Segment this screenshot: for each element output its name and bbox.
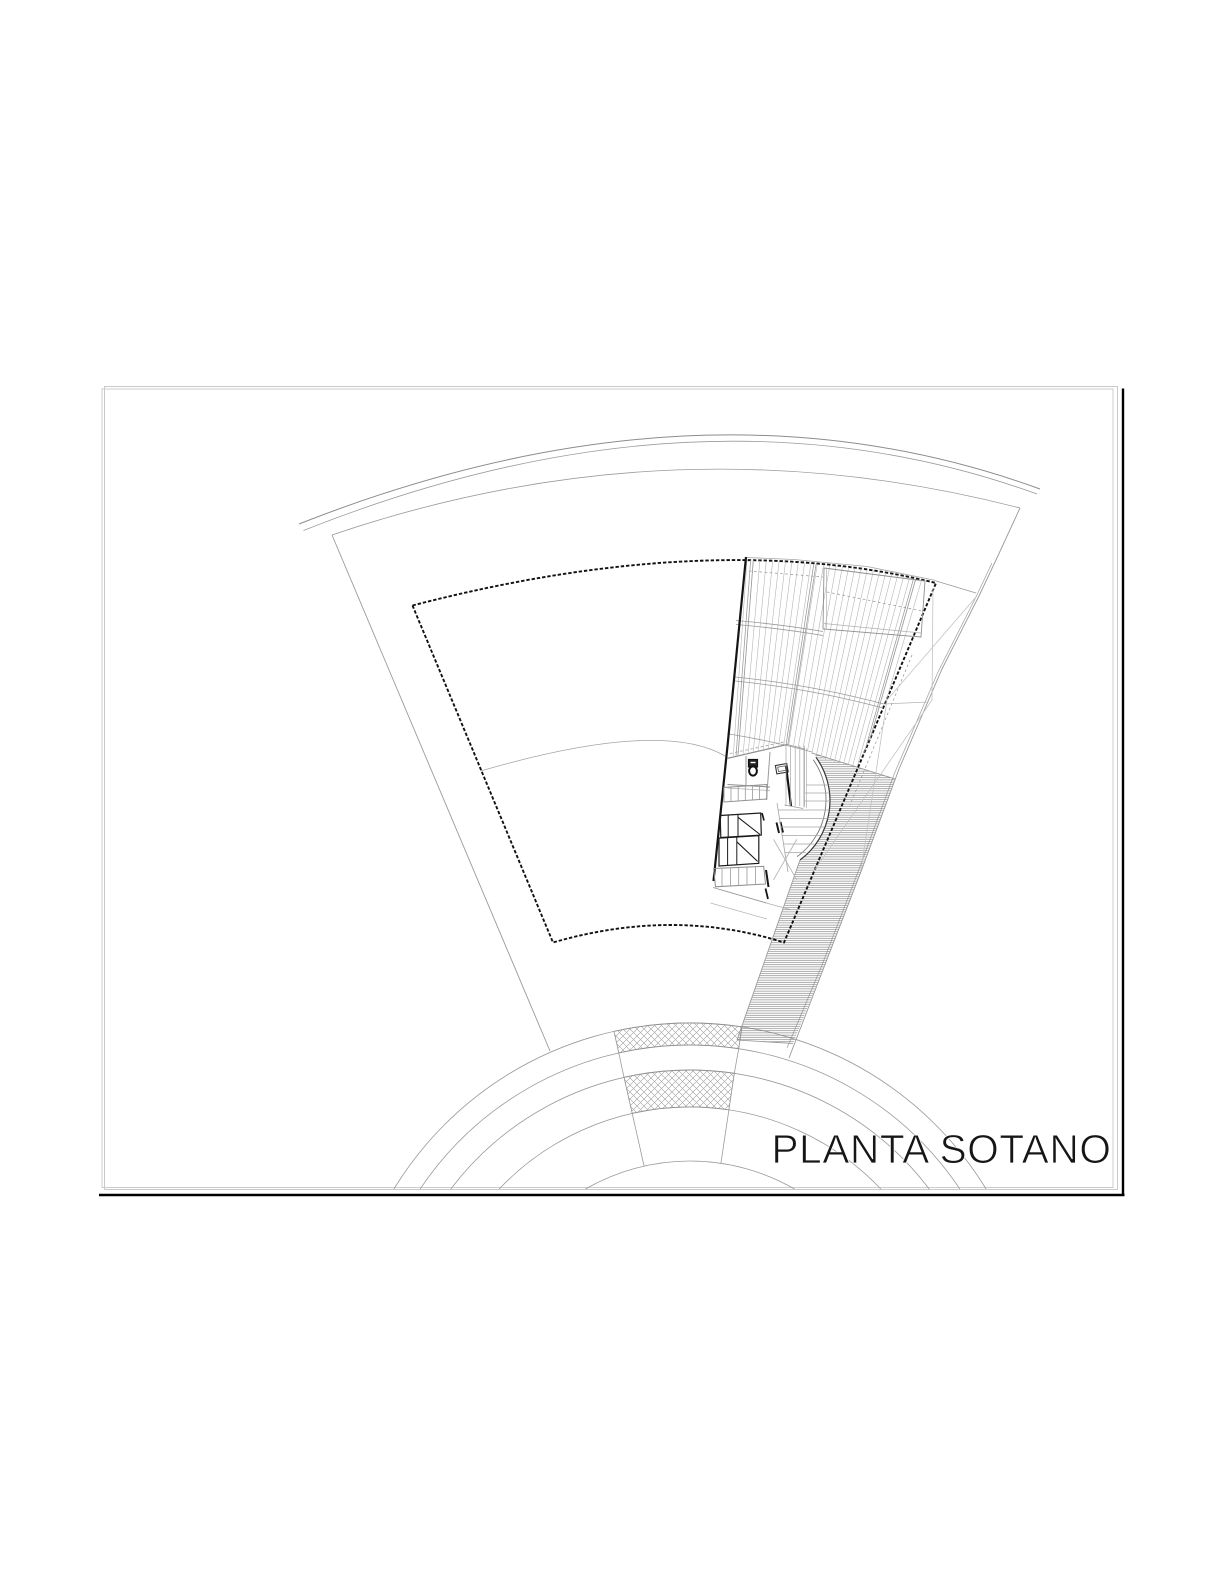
svg-text:PLANTA SOTANO: PLANTA SOTANO xyxy=(772,1126,1112,1172)
